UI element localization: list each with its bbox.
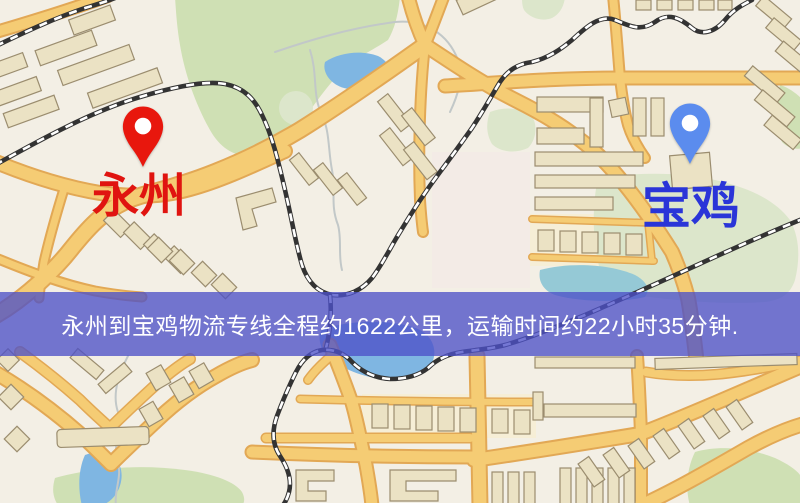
origin-marker — [120, 104, 166, 170]
logistics-route-map: 永州 宝鸡 永州到宝鸡物流专线全程约1622公里，运输时间约22小时35分钟. — [0, 0, 800, 503]
route-info-text: 永州到宝鸡物流专线全程约1622公里，运输时间约22小时35分钟. — [61, 307, 738, 341]
route-info-banner: 永州到宝鸡物流专线全程约1622公里，运输时间约22小时35分钟. — [0, 292, 800, 356]
destination-marker — [667, 101, 713, 167]
origin-label: 永州 — [92, 174, 186, 221]
map-background — [0, 0, 800, 503]
destination-label: 宝鸡 — [642, 182, 740, 231]
origin-pin-icon — [120, 104, 166, 170]
destination-pin-icon — [667, 101, 713, 167]
